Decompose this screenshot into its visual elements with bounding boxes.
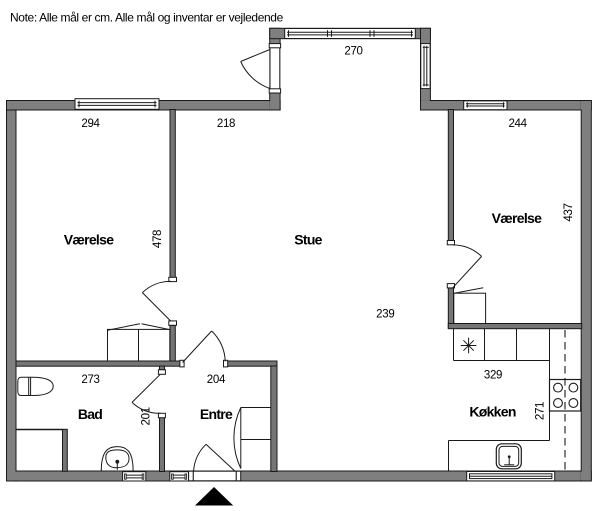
svg-text:204: 204	[207, 374, 226, 386]
svg-text:Bad: Bad	[78, 406, 102, 422]
svg-text:270: 270	[344, 46, 362, 58]
svg-text:Værelse: Værelse	[64, 231, 114, 247]
svg-text:239: 239	[376, 309, 394, 321]
svg-text:273: 273	[81, 374, 99, 386]
svg-text:218: 218	[217, 118, 235, 130]
svg-text:271: 271	[535, 402, 547, 420]
svg-text:Køkken: Køkken	[469, 404, 516, 420]
svg-text:478: 478	[152, 230, 164, 248]
svg-text:329: 329	[484, 369, 502, 381]
svg-text:294: 294	[81, 118, 100, 130]
svg-text:201: 201	[141, 407, 153, 425]
svg-text:Note: Alle mål er cm. Alle mål: Note: Alle mål er cm. Alle mål og invent…	[10, 11, 284, 25]
svg-text:244: 244	[508, 118, 527, 130]
svg-text:437: 437	[563, 203, 575, 221]
svg-text:Entre: Entre	[200, 406, 233, 422]
svg-text:Værelse: Værelse	[492, 210, 542, 226]
svg-text:Stue: Stue	[294, 232, 322, 248]
